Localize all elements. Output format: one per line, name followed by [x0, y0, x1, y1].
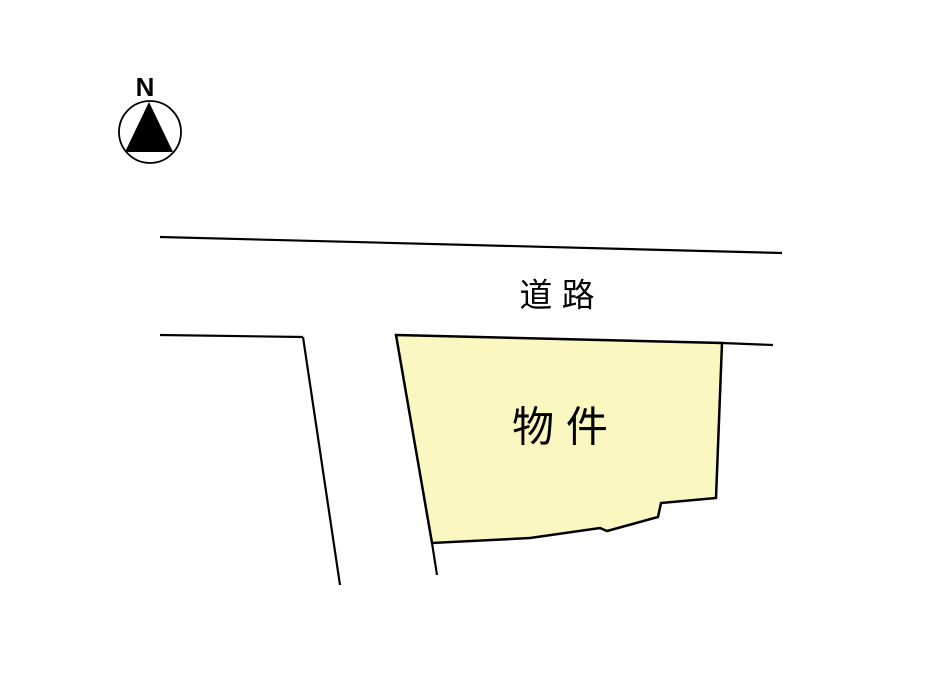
road-edge-right	[722, 343, 773, 345]
compass-north-needle-icon	[125, 102, 173, 152]
map-drawing: N道 路物 件	[0, 0, 947, 681]
site-plan-map: N道 路物 件	[0, 0, 947, 681]
road-edge-left-vertical	[303, 337, 340, 585]
road-edge-top	[160, 237, 782, 253]
parcel-boundary-extension	[432, 543, 437, 575]
road-edge-left-horizontal	[160, 335, 303, 337]
road-label: 道 路	[519, 277, 594, 314]
property-label: 物 件	[512, 404, 608, 451]
compass-north-label: N	[136, 72, 155, 102]
